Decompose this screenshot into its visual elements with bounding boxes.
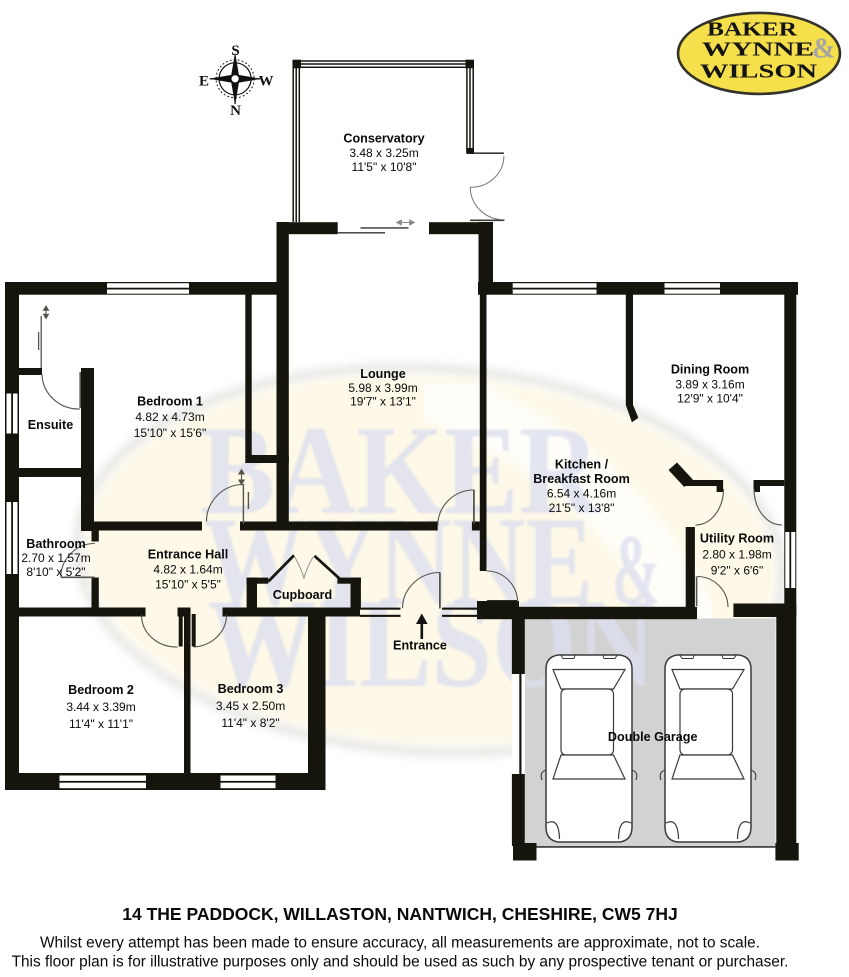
svg-text:Entrance Hall: Entrance Hall [148, 548, 229, 562]
svg-text:3.45 x 2.50m: 3.45 x 2.50m [216, 699, 285, 713]
svg-text:Entrance: Entrance [393, 639, 447, 653]
svg-text:Kitchen /: Kitchen / [555, 458, 609, 472]
svg-text:S: S [231, 43, 239, 59]
svg-text:Bathroom: Bathroom [26, 537, 85, 551]
svg-text:3.89 x 3.16m: 3.89 x 3.16m [675, 378, 744, 392]
svg-text:5.98 x 3.99m: 5.98 x 3.99m [348, 381, 417, 395]
svg-text:Lounge: Lounge [360, 367, 405, 381]
svg-text:This floor plan is for illustr: This floor plan is for illustrative purp… [12, 954, 789, 971]
svg-text:12'9" x 10'4": 12'9" x 10'4" [677, 392, 743, 406]
svg-text:Bedroom 2: Bedroom 2 [68, 683, 134, 697]
svg-text:Bedroom 3: Bedroom 3 [218, 682, 284, 696]
svg-text:E: E [199, 74, 209, 90]
svg-text:3.48 x 3.25m: 3.48 x 3.25m [349, 146, 418, 160]
svg-text:WILSON: WILSON [700, 61, 817, 83]
svg-text:Dining Room: Dining Room [671, 363, 749, 377]
svg-text:Ensuite: Ensuite [28, 418, 74, 432]
svg-text:6.54 x 4.16m: 6.54 x 4.16m [547, 487, 616, 501]
svg-text:15'10" x 5'5": 15'10" x 5'5" [155, 578, 221, 592]
svg-text:Whilst every attempt has been: Whilst every attempt has been made to en… [40, 935, 760, 952]
svg-text:Conservatory: Conservatory [343, 132, 424, 146]
svg-text:Bedroom 1: Bedroom 1 [137, 395, 203, 409]
svg-text:15'10" x 15'6": 15'10" x 15'6" [134, 426, 207, 440]
svg-text:WYNNE: WYNNE [702, 38, 814, 60]
svg-text:14 THE PADDOCK, WILLASTON, NAN: 14 THE PADDOCK, WILLASTON, NANTWICH, CHE… [122, 904, 678, 924]
svg-text:11'4" x 11'1": 11'4" x 11'1" [69, 717, 133, 731]
svg-text:N: N [230, 103, 241, 119]
svg-text:Double Garage: Double Garage [608, 730, 698, 744]
svg-text:BAKER: BAKER [707, 18, 797, 40]
svg-text:19'7" x 13'1": 19'7" x 13'1" [350, 395, 416, 409]
svg-text:9'2" x 6'6": 9'2" x 6'6" [711, 564, 763, 578]
svg-text:8'10" x 5'2": 8'10" x 5'2" [26, 565, 85, 579]
svg-text:4.82 x 4.73m: 4.82 x 4.73m [135, 410, 204, 424]
svg-text:Breakfast Room: Breakfast Room [533, 472, 630, 486]
svg-text:11'5" x 10'8": 11'5" x 10'8" [352, 160, 417, 174]
svg-text:2.70 x 1.57m: 2.70 x 1.57m [21, 551, 90, 565]
svg-text:Utility Room: Utility Room [700, 532, 774, 546]
svg-text:21'5" x 13'8": 21'5" x 13'8" [549, 501, 615, 515]
svg-text:W: W [259, 74, 274, 90]
svg-text:3.44 x 3.39m: 3.44 x 3.39m [66, 700, 135, 714]
svg-text:Cupboard: Cupboard [273, 588, 332, 602]
svg-text:11'4" x 8'2": 11'4" x 8'2" [221, 716, 279, 730]
svg-text:4.82 x 1.64m: 4.82 x 1.64m [153, 563, 222, 577]
svg-text:2.80 x 1.98m: 2.80 x 1.98m [702, 548, 771, 562]
